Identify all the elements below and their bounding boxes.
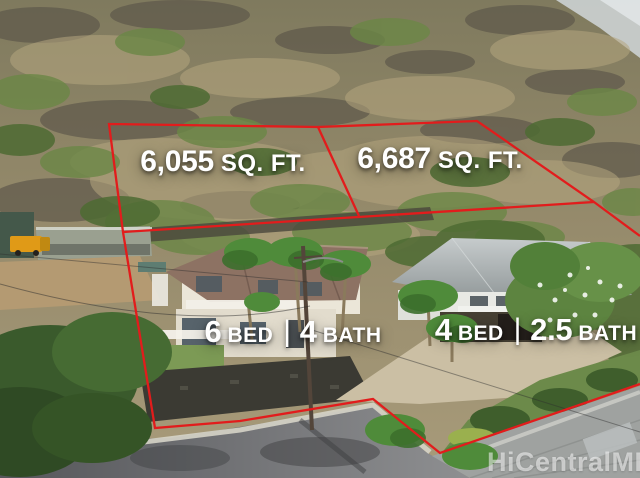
divider-bar: | (283, 315, 291, 348)
divider-bar: | (514, 313, 522, 346)
left-house-beds-unit: BED (227, 324, 273, 347)
lot-right-area-value: 6,687 (357, 142, 431, 175)
right-house-beds-unit: BED (458, 322, 504, 345)
right-house-bedbath-label: 4BED|2.5BATH (435, 314, 637, 346)
lot-divider-line (318, 127, 359, 216)
right-house-beds-value: 4 (435, 312, 452, 347)
lot-right-area-label: 6,687SQ. FT. (357, 144, 522, 174)
parcel-boundary-overlay (0, 0, 640, 478)
listing-photo: 6,055SQ. FT. 6,687SQ. FT. 6BED|4BATH 4BE… (0, 0, 640, 478)
left-house-baths-value: 4 (300, 314, 317, 349)
lot-left-area-unit: SQ. FT. (221, 150, 306, 177)
right-house-baths-unit: BATH (578, 322, 637, 345)
right-house-baths-value: 2.5 (530, 312, 572, 347)
lot-left-area-value: 6,055 (140, 145, 214, 178)
lot-right-area-unit: SQ. FT. (438, 147, 523, 174)
lot-left-area-label: 6,055SQ. FT. (140, 147, 305, 177)
lot-frontage-line (123, 202, 594, 232)
mls-watermark: HiCentralMLS (487, 447, 640, 478)
left-house-beds-value: 6 (204, 314, 221, 349)
left-house-bedbath-label: 6BED|4BATH (204, 316, 381, 348)
left-house-baths-unit: BATH (323, 324, 382, 347)
